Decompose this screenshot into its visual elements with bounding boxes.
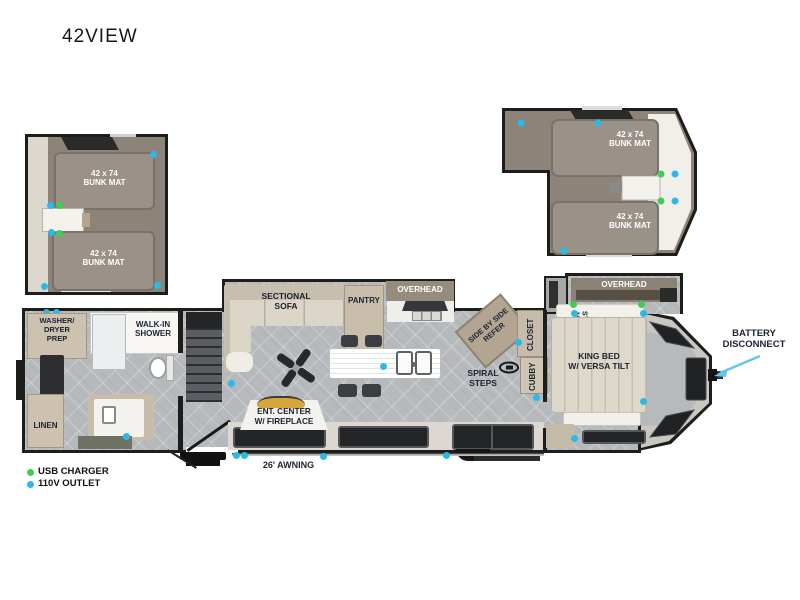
legend-usb-charger-label: USB CHARGER [38, 466, 148, 477]
bed-foot-bench [563, 412, 641, 426]
bunk-nightstand [42, 208, 84, 232]
battery-disconnect-label: BATTERY DISCONNECT [710, 328, 798, 350]
awning-label: 26' AWNING [246, 460, 331, 471]
sink-faucet-icon [411, 362, 416, 367]
sofa-chaise-cushion [226, 352, 253, 372]
ent-center-label: ENT. CENTER W/ FIREPLACE [238, 407, 330, 426]
bottom-window-2 [338, 426, 429, 448]
bathroom-mirror [40, 355, 64, 397]
bathroom-wall-lower [178, 396, 183, 450]
ceiling-fan-icon [268, 344, 324, 392]
floorplan-42view: 42VIEW 42 x 74 BUNK MAT 42 x 74 BUNK MAT [0, 0, 800, 600]
walk-in-shower-label: WALK-IN SHOWER [124, 320, 182, 339]
shower-pan [92, 314, 126, 370]
page-title: 42VIEW [62, 26, 182, 48]
110v-outlet-dot [228, 380, 235, 387]
110v-outlet-dot [515, 339, 522, 346]
battery-disconnect-arrow [702, 348, 768, 380]
bedroom-bottom-window [582, 430, 646, 444]
bedroom-corner-dresser [546, 424, 574, 448]
110v-outlet-dot [233, 452, 240, 459]
entry-steps [180, 452, 226, 460]
island-stool [338, 384, 357, 397]
king-bed-label: KING BED W/ VERSA TILT [551, 351, 647, 371]
usb-charger-dot [56, 230, 63, 237]
usb-charger-dot [570, 301, 577, 308]
bedroom-corner-cabinet [660, 288, 677, 302]
bottom-window-3 [452, 424, 534, 450]
sectional-sofa-label: SECTIONAL SOFA [248, 291, 324, 311]
bunk-room-right [498, 104, 702, 262]
bunk-mat-4-label: 42 x 74 BUNK MAT [575, 212, 685, 231]
110v-outlet-dot [533, 394, 540, 401]
110v-outlet-dot [571, 435, 578, 442]
110v-outlet-dot [640, 398, 647, 405]
island-stool [341, 335, 358, 347]
110v-outlet-dot [571, 310, 578, 317]
left-wall-stub [16, 360, 24, 400]
usb-charger-dot [56, 202, 63, 209]
bunk-mat-1-label: 42 x 74 BUNK MAT [54, 169, 155, 188]
legend-usb-charger-dot [27, 469, 34, 476]
bunk-nightstand-edge [610, 182, 622, 193]
pantry-label: PANTRY [342, 296, 386, 305]
bunk-mat-3-label: 42 x 74 BUNK MAT [575, 130, 685, 149]
110v-outlet-dot [150, 151, 157, 158]
usb-charger-dot [658, 171, 665, 178]
bunk-room-left: 42 x 74 BUNK MAT 42 x 74 BUNK MAT [25, 134, 168, 295]
legend-110v-outlet-dot [27, 481, 34, 488]
range-icon [412, 311, 442, 321]
washer-dryer-label: WASHER/ DRYER PREP [27, 317, 87, 344]
legend-110v-outlet-label: 110V OUTLET [38, 478, 148, 489]
closet-label: CLOSET [526, 313, 535, 356]
bunk-nightstand [622, 176, 660, 200]
110v-outlet-dot [154, 282, 161, 289]
bedroom-wall-upper [543, 310, 547, 402]
bottom-window-1 [233, 427, 326, 448]
110v-outlet-dot [48, 229, 55, 236]
range-hood-icon [402, 301, 448, 311]
roof-vent-icon [570, 110, 634, 120]
island-stool [365, 335, 382, 347]
roof-vent-icon [61, 137, 119, 150]
110v-outlet-dot [443, 452, 450, 459]
linen-label: LINEN [25, 421, 66, 430]
110v-outlet-dot [640, 310, 647, 317]
cubby-label: CUBBY [528, 360, 537, 393]
110v-outlet-dot [518, 120, 525, 127]
usb-charger-dot [658, 198, 665, 205]
spiral-steps-icon [498, 361, 520, 374]
vanity-sink-icon [102, 406, 116, 424]
110v-outlet-dot [47, 202, 54, 209]
bunk-mat-2-label: 42 x 74 BUNK MAT [52, 249, 155, 268]
110v-outlet-dot [320, 453, 327, 460]
window-gap [110, 134, 136, 137]
window-gap [582, 106, 622, 110]
110v-outlet-dot [380, 363, 387, 370]
usb-charger-dot [638, 301, 645, 308]
sink-basin-right [415, 351, 432, 375]
bathroom-wall-upper [178, 311, 183, 353]
under-body-bar [474, 456, 540, 461]
110v-outlet-dot [41, 283, 48, 290]
110v-outlet-dot [672, 171, 679, 178]
110v-outlet-dot [561, 248, 568, 255]
awning-rail [232, 453, 544, 456]
110v-outlet-dot [123, 433, 130, 440]
bottom-window-3-divider [491, 426, 493, 448]
110v-outlet-dot [241, 452, 248, 459]
110v-outlet-dot [672, 198, 679, 205]
kitchen-overhead-label: OVERHEAD [386, 285, 454, 294]
island-stool [362, 384, 381, 397]
loft-stairs-landing [186, 312, 222, 328]
toilet-icon [149, 357, 167, 379]
toilet-tank [166, 355, 174, 381]
110v-outlet-dot [595, 120, 602, 127]
bunk-nightstand-edge [82, 213, 90, 227]
